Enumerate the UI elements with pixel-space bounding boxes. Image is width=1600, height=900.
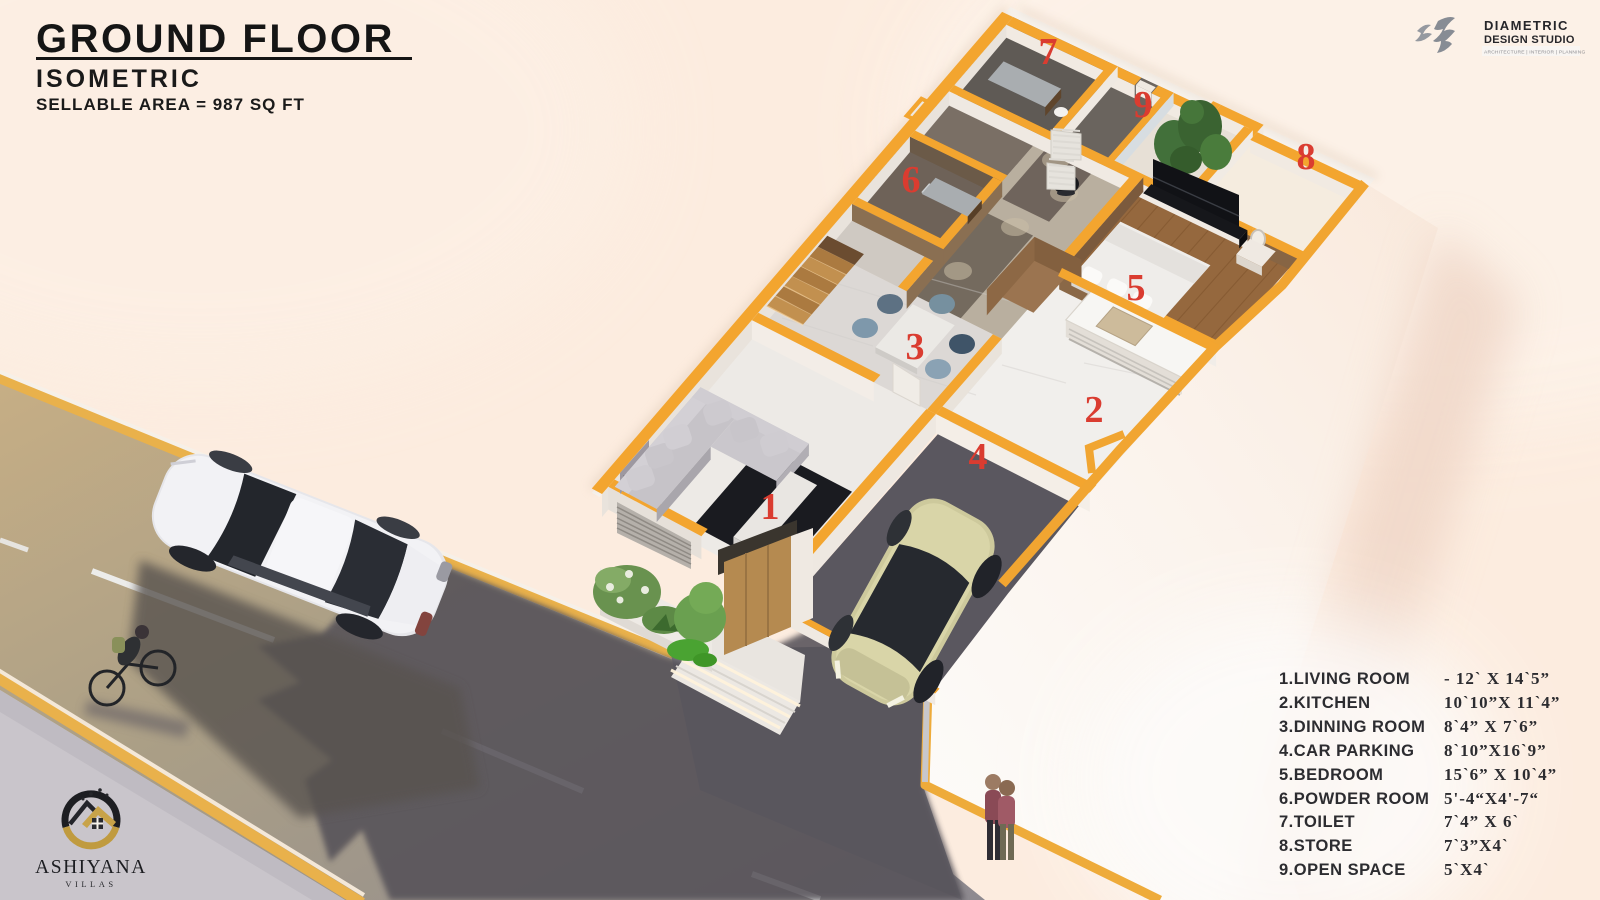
svg-text:5: 5 [1127, 267, 1146, 309]
svg-text:7`3”X4`: 7`3”X4` [1444, 836, 1509, 855]
svg-text:6: 6 [902, 159, 921, 201]
svg-text:7: 7 [1039, 31, 1058, 73]
svg-text:5`X4`: 5`X4` [1444, 860, 1490, 879]
svg-text:8: 8 [1297, 136, 1316, 178]
svg-text:5'-4“X4'-7“: 5'-4“X4'-7“ [1444, 789, 1539, 808]
svg-text:SELLABLE AREA = 987 SQ FT: SELLABLE AREA = 987 SQ FT [36, 95, 305, 114]
svg-text:8`4” X 7`6”: 8`4” X 7`6” [1444, 717, 1538, 736]
svg-text:3: 3 [906, 326, 925, 368]
svg-text:4.CAR PARKING: 4.CAR PARKING [1279, 742, 1414, 760]
svg-text:15`6” X 10`4”: 15`6” X 10`4” [1444, 765, 1557, 784]
svg-text:VILLAS: VILLAS [65, 879, 116, 889]
svg-text:2: 2 [1085, 389, 1104, 431]
svg-text:9: 9 [1134, 84, 1153, 126]
svg-text:GROUND FLOOR: GROUND FLOOR [36, 17, 395, 61]
svg-text:DIAMETRIC: DIAMETRIC [1484, 18, 1569, 33]
svg-text:9.OPEN SPACE: 9.OPEN SPACE [1279, 861, 1406, 879]
svg-text:1.LIVING ROOM: 1.LIVING ROOM [1279, 670, 1410, 688]
svg-text:ISOMETRIC: ISOMETRIC [36, 65, 202, 93]
svg-text:ASHIYANA: ASHIYANA [35, 857, 147, 878]
svg-text:4: 4 [969, 436, 988, 478]
svg-text:DESIGN STUDIO: DESIGN STUDIO [1484, 34, 1575, 46]
svg-text:8`10”X16`9”: 8`10”X16`9” [1444, 741, 1547, 760]
svg-text:6.POWDER ROOM: 6.POWDER ROOM [1279, 790, 1429, 808]
svg-text:ARCHITECTURE | INTERIOR | PLAN: ARCHITECTURE | INTERIOR | PLANNING [1484, 50, 1585, 56]
svg-text:1: 1 [761, 486, 780, 528]
svg-text:7.TOILET: 7.TOILET [1279, 813, 1355, 831]
svg-text:7`4” X 6`: 7`4” X 6` [1444, 812, 1519, 831]
svg-text:8.STORE: 8.STORE [1279, 837, 1353, 855]
svg-text:- 12` X 14`5”: - 12` X 14`5” [1444, 669, 1550, 688]
svg-text:5.BEDROOM: 5.BEDROOM [1279, 766, 1383, 784]
svg-text:10`10”X 11`4”: 10`10”X 11`4” [1444, 693, 1560, 712]
svg-text:3.DINNING ROOM: 3.DINNING ROOM [1279, 718, 1425, 736]
svg-text:2.KITCHEN: 2.KITCHEN [1279, 694, 1371, 712]
